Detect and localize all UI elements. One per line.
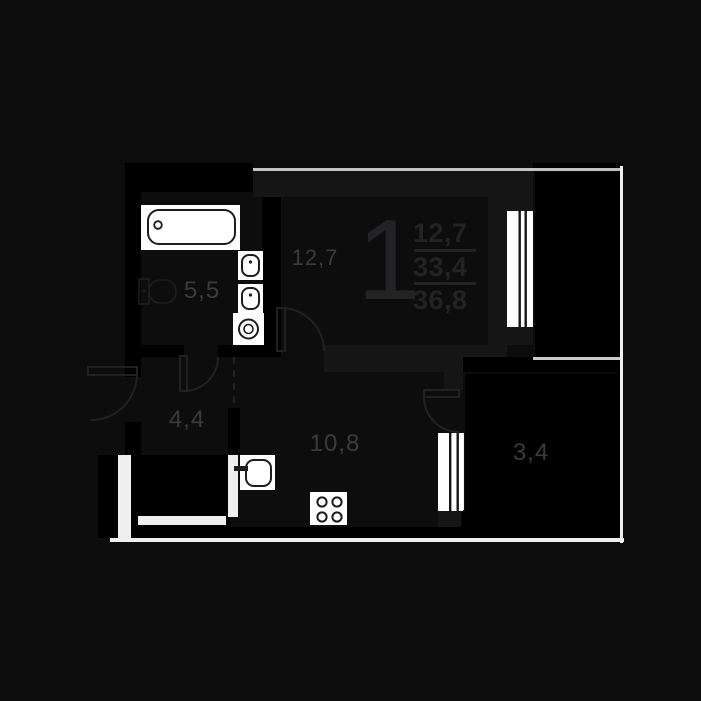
floor-plan: 12,7 5,5 4,4 10,8 3,4 1 12,7 33,4 36,8 [0,0,701,701]
bathroom-door-arc [180,356,218,391]
stove-icon [310,492,347,525]
living-room-area-label: 12,7 [292,245,339,271]
kitchen-area-label: 10,8 [310,430,361,458]
hallway-area-label: 4,4 [169,406,205,434]
living-room-door-arc [277,308,324,351]
sink-icon-2 [238,284,263,313]
rooms-count: 1 [357,213,403,311]
area-without-balcony-value: 33,4 [413,255,483,280]
bathroom-area-label: 5,5 [184,277,220,305]
kitchen-sink-icon [234,455,275,490]
toilet-icon [139,279,176,304]
balcony-door-arc [424,390,459,432]
floor-plan-drawing [0,0,701,701]
entrance-door-arc [88,367,137,420]
bathtub-icon [141,205,240,250]
washing-machine-icon [233,313,264,345]
balcony-area-label: 3,4 [513,439,549,467]
sink-icon [238,251,263,280]
living-area-value: 12,7 [413,221,483,246]
total-area-value: 36,8 [413,288,483,313]
window-icon-living [507,211,533,327]
window-icon-kitchen [438,433,463,511]
